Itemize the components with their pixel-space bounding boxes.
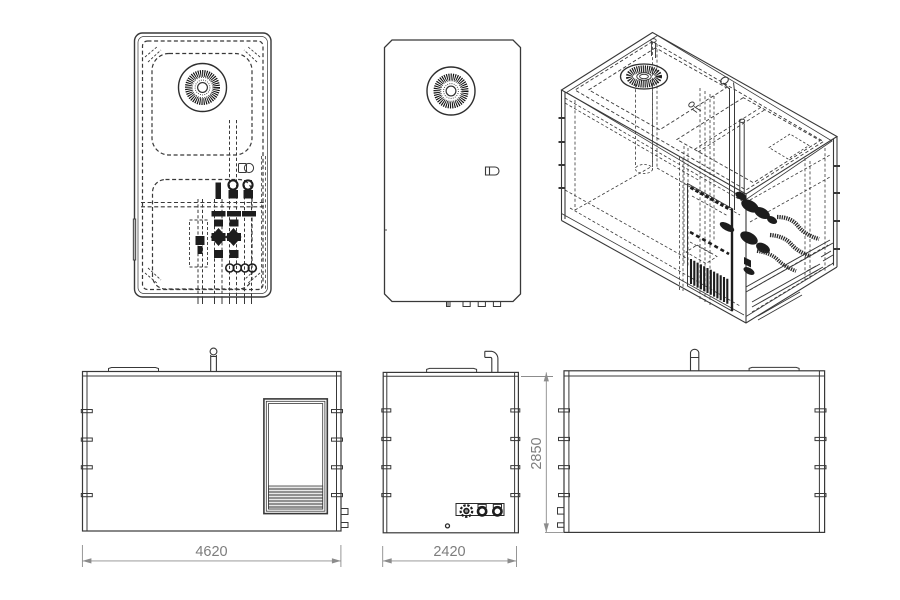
svg-text:2850: 2850 bbox=[529, 437, 545, 469]
svg-text:2420: 2420 bbox=[433, 544, 465, 560]
svg-text:4620: 4620 bbox=[195, 544, 227, 560]
